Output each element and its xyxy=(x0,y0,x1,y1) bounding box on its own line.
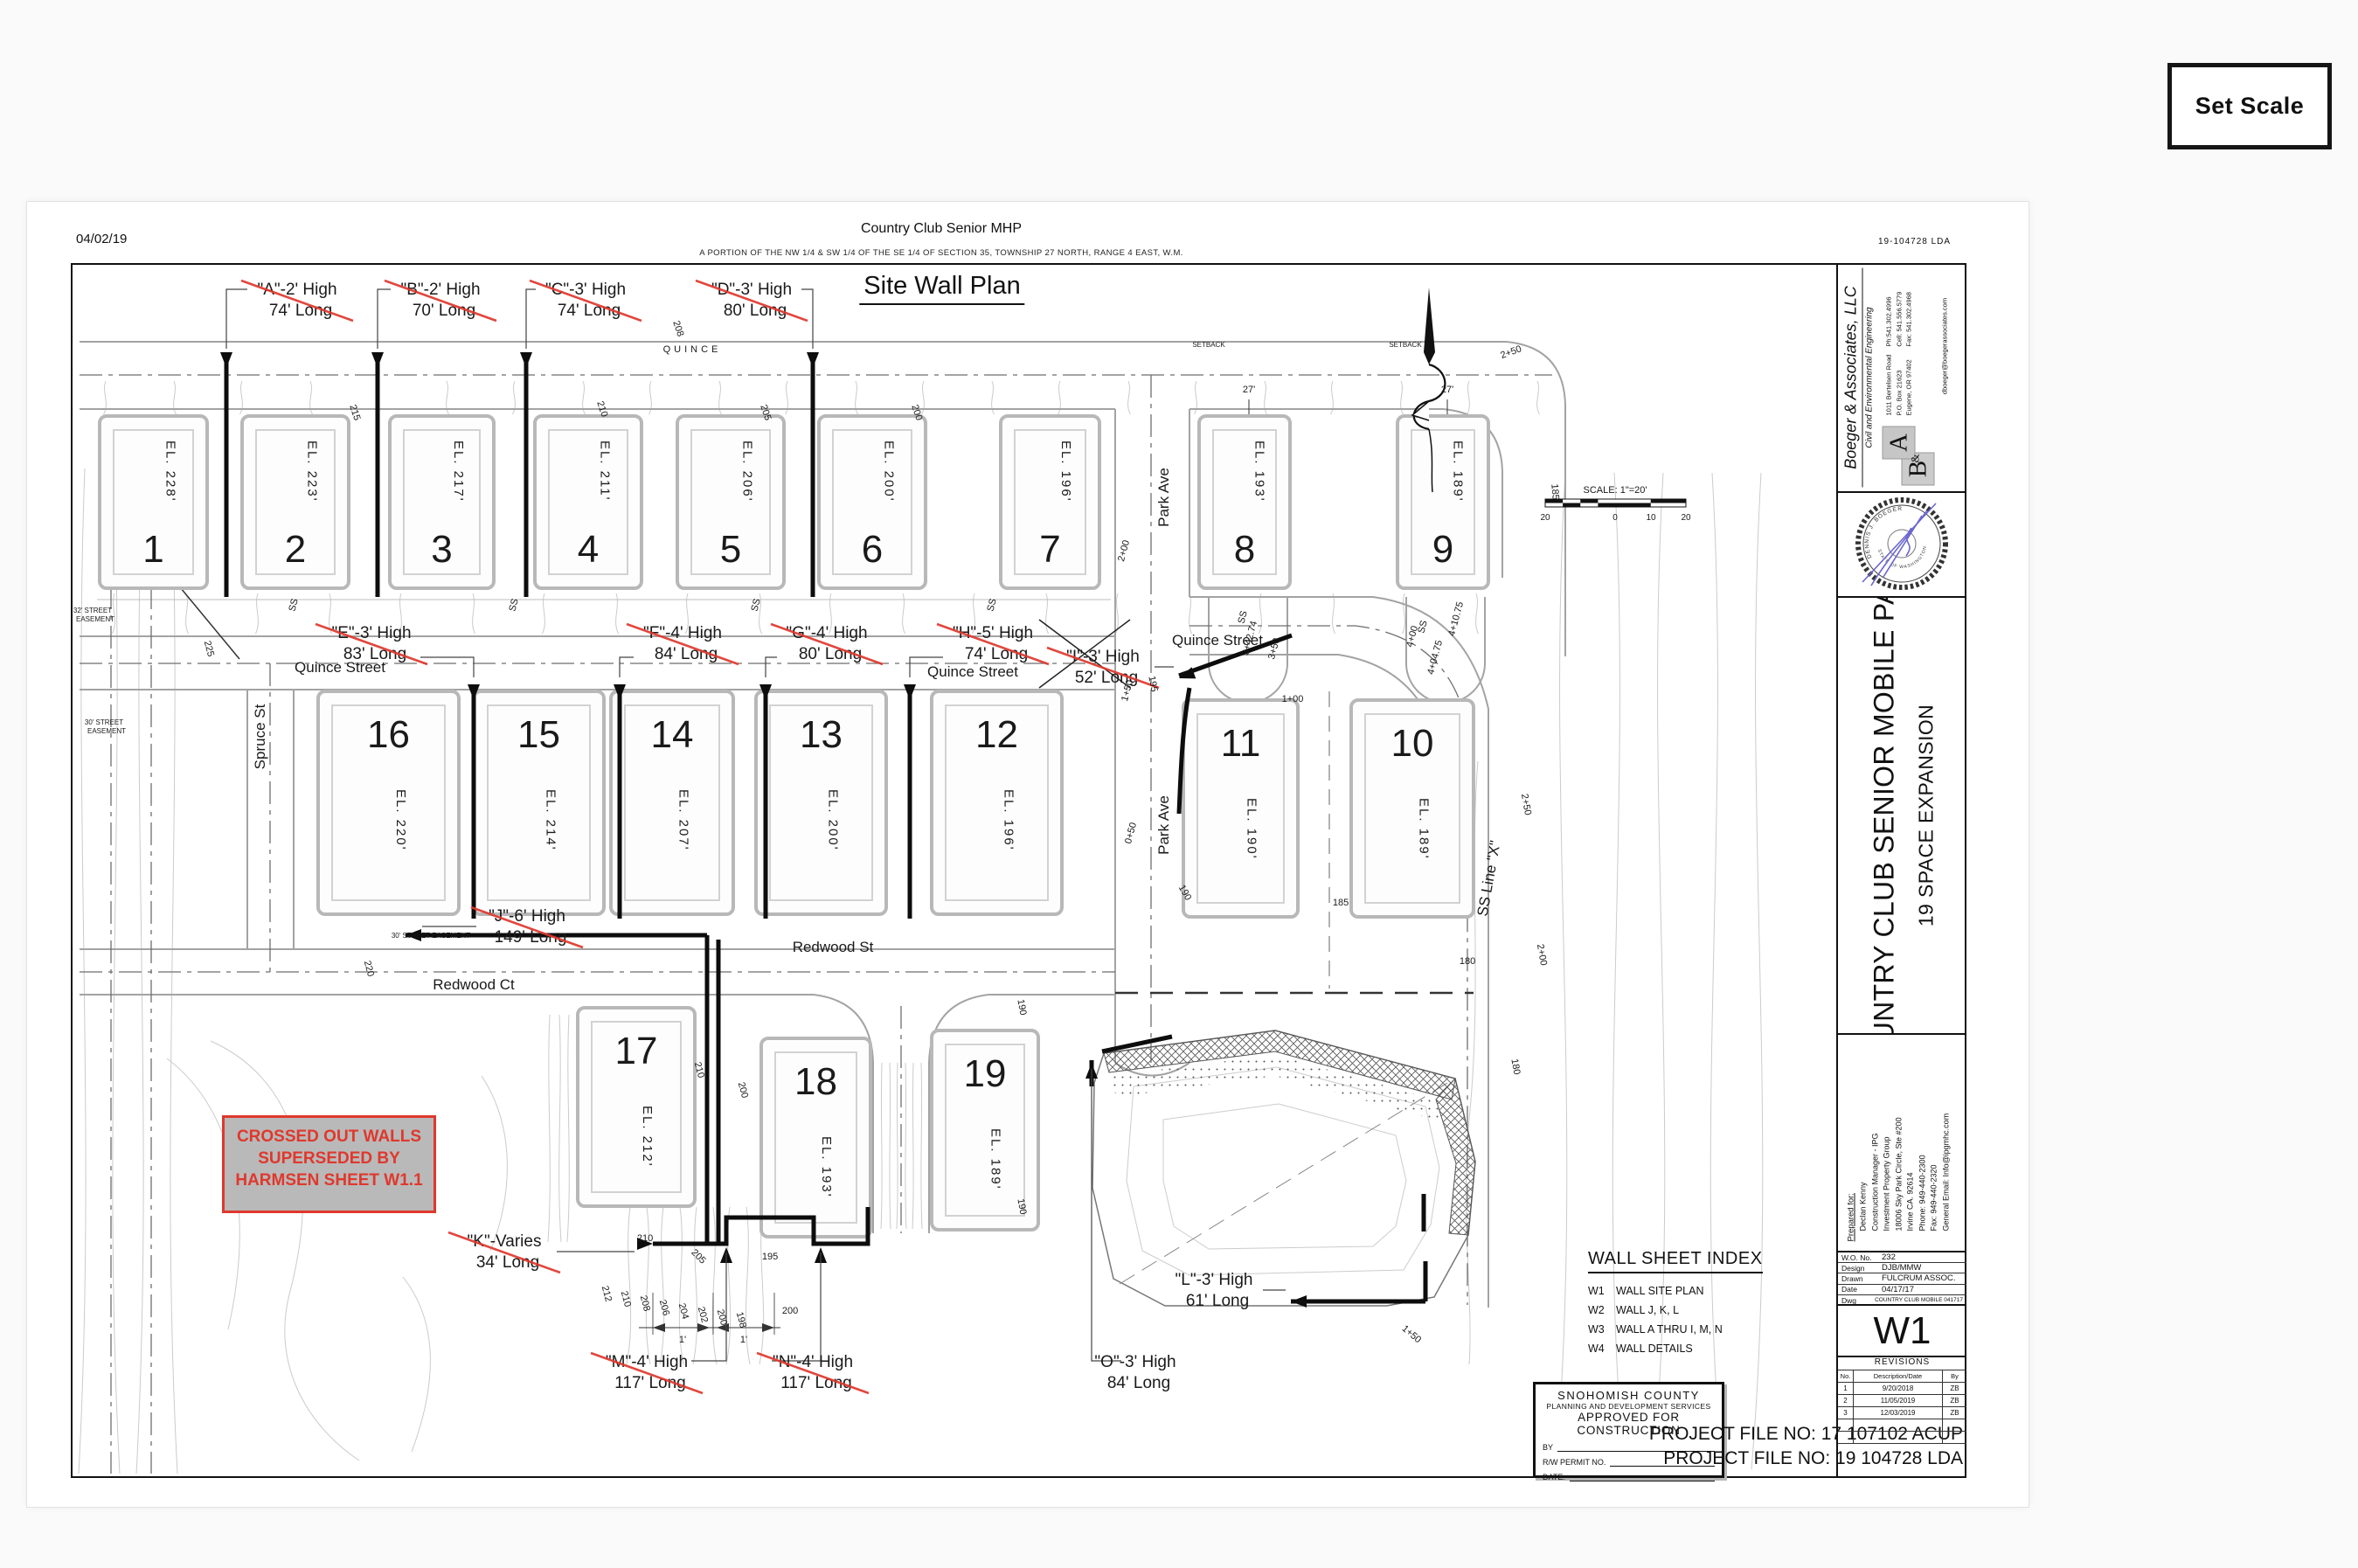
svg-text:61' Long: 61' Long xyxy=(1186,1292,1249,1310)
lot-elevation: EL. 228' xyxy=(163,441,177,503)
lot: 8EL. 193' xyxy=(1199,416,1290,588)
lot-number: 14 xyxy=(651,713,694,756)
annotation: 205 xyxy=(689,1247,707,1266)
lot: 17EL. 212' xyxy=(578,1008,695,1206)
svg-text:"O"-3' High: "O"-3' High xyxy=(1094,1353,1176,1371)
annotation: 200 xyxy=(782,1306,798,1316)
lot: 5EL. 206' xyxy=(677,416,784,588)
viewer-canvas: Set Scale 04/02/19 19-104728 LDA Country… xyxy=(0,0,2358,1568)
street-label: Redwood St xyxy=(793,939,874,955)
street-label: SS Line "X" xyxy=(1474,839,1504,918)
annotation: 195 xyxy=(1146,675,1159,692)
annotation: SS xyxy=(1416,620,1429,635)
wall-sheet-index: WALL SHEET INDEX W1WALL SITE PLAN W2WALL… xyxy=(1588,1249,1776,1359)
lot-elevation: EL. 189' xyxy=(1416,798,1431,860)
lot-number: 10 xyxy=(1391,722,1434,765)
street-label: Park Ave xyxy=(1155,468,1172,527)
wall-label: "M"-4' High117' Long xyxy=(591,1252,726,1393)
annotation: SETBACK xyxy=(1192,341,1225,349)
annotation: 2+00 xyxy=(1116,539,1132,563)
annotation: 4+04.75 xyxy=(1425,639,1445,676)
annotation: 190 xyxy=(1015,998,1028,1016)
lot-number: 3 xyxy=(431,528,452,571)
lot-elevation: EL. 217' xyxy=(451,441,466,503)
annotation: 180 xyxy=(1460,956,1475,967)
street-label: 30' STREET EASEMENT xyxy=(392,932,470,940)
lot-number: 7 xyxy=(1039,528,1060,571)
lot-elevation: EL. 196' xyxy=(1058,441,1073,503)
annotation: SETBACK xyxy=(1389,341,1422,349)
lot-number: 5 xyxy=(720,528,741,571)
lot-number: 11 xyxy=(1221,722,1261,765)
wall-label: "D"-3' High80' Long xyxy=(696,281,813,349)
street-label: EASEMENT xyxy=(87,727,126,735)
annotation: 185 xyxy=(1333,898,1349,908)
annotation: 225 xyxy=(202,640,216,658)
annotation: 2+50 xyxy=(1519,793,1533,815)
lot-elevation: EL. 214' xyxy=(543,789,558,851)
lot: 18EL. 193' xyxy=(761,1038,870,1237)
street-label: EASEMENT xyxy=(76,615,114,623)
annotation: 220 xyxy=(362,960,376,978)
signature-scribble xyxy=(1862,503,1936,586)
engineer-firm-block: Boeger & Associates, LLC Civil and Envir… xyxy=(1838,263,1966,493)
lot-elevation: EL. 212' xyxy=(640,1106,655,1168)
lot-number: 17 xyxy=(615,1030,658,1072)
annotation: SS xyxy=(1236,610,1249,625)
lot: 10EL. 189' xyxy=(1351,700,1474,917)
wall-label: "L"-3' High61' Long xyxy=(1176,1271,1286,1310)
annotation: 3+50 xyxy=(1266,637,1282,661)
svg-text:DENNIS J. BOEGER: DENNIS J. BOEGER xyxy=(1864,506,1903,559)
wall-label: "K"-Varies34' Long xyxy=(448,1232,635,1273)
wall-label: "A"-2' High74' Long xyxy=(226,281,353,349)
lot: 7EL. 196' xyxy=(1001,416,1099,588)
lot-number: 16 xyxy=(367,713,410,756)
wall-label: "O"-3' High84' Long xyxy=(1092,1069,1176,1392)
annotation: 27' xyxy=(1243,385,1255,395)
annotation: 204 xyxy=(676,1302,690,1321)
work-order-table: W.O. No.232 DesignDJB/MMW DrawnFULCRUM A… xyxy=(1838,1252,1966,1306)
lot-elevation: EL. 193' xyxy=(1252,441,1266,503)
lot: 13EL. 200' xyxy=(756,691,886,914)
wall-index-item: W2WALL J, K, L xyxy=(1588,1301,1776,1321)
lot-elevation: EL. 189' xyxy=(1450,441,1465,503)
annotation: 212 xyxy=(600,1285,614,1303)
annotation: 206 xyxy=(657,1299,671,1317)
lot-number: 18 xyxy=(794,1060,837,1103)
lot-elevation: EL. 190' xyxy=(1244,798,1259,860)
plan-sheet: 04/02/19 19-104728 LDA Country Club Seni… xyxy=(26,201,2029,1508)
street-label: Spruce St xyxy=(252,704,268,769)
wall-index-item: W3WALL A THRU I, M, N xyxy=(1588,1321,1776,1340)
svg-text:"I"-3' High: "I"-3' High xyxy=(1066,648,1140,666)
lot-elevation: EL. 196' xyxy=(1001,789,1016,851)
lot: 12EL. 196' xyxy=(932,691,1062,914)
lot-elevation: EL. 193' xyxy=(819,1136,834,1198)
lot-elevation: EL. 189' xyxy=(988,1128,1002,1190)
annotation: SS xyxy=(985,598,998,613)
street-label: 32' STREET xyxy=(73,607,112,614)
lots: 1EL. 228'2EL. 223'3EL. 217'4EL. 211'5EL.… xyxy=(100,416,1488,1237)
wall-label: "F"-4' High84' Long xyxy=(620,624,739,677)
street-label: Park Ave xyxy=(1155,795,1172,855)
svg-text:10: 10 xyxy=(1646,513,1656,523)
annotation: 0+50 xyxy=(1123,822,1139,845)
annotation: SS xyxy=(749,598,762,613)
annotation: 208 xyxy=(638,1294,652,1313)
lot-elevation: EL. 200' xyxy=(882,441,897,503)
svg-text:"J"-6' High: "J"-6' High xyxy=(489,907,565,926)
set-scale-button[interactable]: Set Scale xyxy=(2167,63,2332,149)
prepared-for-block: Prepared for: Declan Kenny Construction … xyxy=(1838,1035,1966,1252)
lot-number: 12 xyxy=(975,713,1018,756)
sheet-number: W1 xyxy=(1838,1306,1966,1357)
lot: 11EL. 190' xyxy=(1183,700,1298,917)
annotation: 208 xyxy=(670,319,685,337)
title-block: Boeger & Associates, LLC Civil and Envir… xyxy=(1836,263,1966,1478)
lot-elevation: EL. 220' xyxy=(393,789,408,851)
wall-index-item: W1WALL SITE PLAN xyxy=(1588,1282,1776,1301)
annotation: 200 xyxy=(715,1308,729,1327)
lot-number: 6 xyxy=(862,528,883,571)
wall-label: "N"-4' High117' Long xyxy=(757,1252,869,1393)
superseded-note: CROSSED OUT WALLSSUPERSEDED BYHARMSEN SH… xyxy=(222,1115,436,1213)
svg-text:20: 20 xyxy=(1540,513,1550,523)
annotation: 2+00 xyxy=(1535,943,1549,966)
svg-text:84' Long: 84' Long xyxy=(1107,1374,1170,1392)
lot-number: 1 xyxy=(142,528,163,571)
annotation: SS xyxy=(507,598,520,613)
project-name-block: COUNTRY CLUB SENIOR MOBILE PARK 19 SPACE… xyxy=(1838,598,1966,1035)
lot-elevation: EL. 200' xyxy=(825,789,840,851)
annotation: SS xyxy=(287,598,300,613)
street-label: Quince Street xyxy=(927,663,1018,680)
lot-elevation: EL. 206' xyxy=(740,441,755,503)
lot-number: 15 xyxy=(517,713,560,756)
street-label: QUINCE xyxy=(663,344,722,355)
annotation: 2+50 xyxy=(1499,343,1522,361)
lot: 4EL. 211' xyxy=(535,416,642,588)
wall-label: "C"-3' High74' Long xyxy=(526,281,642,349)
annotation: 1+50 xyxy=(1400,1323,1424,1345)
svg-text:SCALE: 1"=20': SCALE: 1"=20' xyxy=(1584,485,1647,496)
retention-pond xyxy=(1092,1030,1475,1306)
lot-number: 8 xyxy=(1234,528,1255,571)
lot: 9EL. 189' xyxy=(1397,416,1488,588)
svg-text:"L"-3' High: "L"-3' High xyxy=(1176,1271,1253,1289)
street-label: 30' STREET xyxy=(85,718,123,726)
lot-number: 13 xyxy=(800,713,843,756)
lot-elevation: EL. 211' xyxy=(598,441,613,501)
svg-text:"K"-Varies: "K"-Varies xyxy=(468,1232,542,1251)
lot: 1EL. 228' xyxy=(100,416,207,588)
lot: 3EL. 217' xyxy=(390,416,494,588)
lot: 6EL. 200' xyxy=(819,416,926,588)
wall-label: "B"-2' High70' Long xyxy=(378,281,496,349)
lot: 2EL. 223' xyxy=(242,416,349,588)
street-label: Quince Street xyxy=(295,659,385,676)
engineer-seal: DENNIS J. BOEGER STATE OF WASHINGTON xyxy=(1838,493,1966,598)
annotation: 185 xyxy=(1549,483,1561,500)
lot: 15EL. 214' xyxy=(474,691,604,914)
wall-label: "G"-4' High80' Long xyxy=(766,624,883,677)
lot-elevation: EL. 207' xyxy=(676,789,690,851)
annotation: 195 xyxy=(762,1252,778,1262)
plan-title: Site Wall Plan xyxy=(859,272,1024,305)
annotation: 200 xyxy=(736,1081,750,1100)
lot-number: 19 xyxy=(964,1052,1007,1095)
firm-logo: B & A xyxy=(1880,420,1938,487)
lot-elevation: EL. 223' xyxy=(305,441,320,503)
annotation: 1' xyxy=(679,1335,686,1345)
svg-text:0: 0 xyxy=(1612,513,1618,523)
annotation: 210 xyxy=(619,1290,633,1308)
lot: 14EL. 207' xyxy=(611,691,733,914)
revisions-table: REVISIONS No.Description/DateBy 19/20/20… xyxy=(1838,1357,1966,1476)
annotation: 4+10.75 xyxy=(1446,600,1466,637)
wall-index-item: W4WALL DETAILS xyxy=(1588,1340,1776,1359)
lot-number: 2 xyxy=(285,528,306,571)
wall-index-title: WALL SHEET INDEX xyxy=(1588,1249,1763,1273)
annotation: 202 xyxy=(696,1306,710,1324)
annotation: 1+00 xyxy=(1282,694,1304,704)
annotation: 180 xyxy=(1508,1058,1522,1075)
street-label: Redwood Ct xyxy=(433,976,515,993)
annotation: 210 xyxy=(637,1233,653,1244)
lot: 16EL. 220' xyxy=(318,691,459,914)
svg-text:20: 20 xyxy=(1681,513,1691,523)
lot-number: 4 xyxy=(578,528,599,571)
lot-number: 9 xyxy=(1432,528,1453,571)
annotation: 1' xyxy=(740,1335,747,1345)
